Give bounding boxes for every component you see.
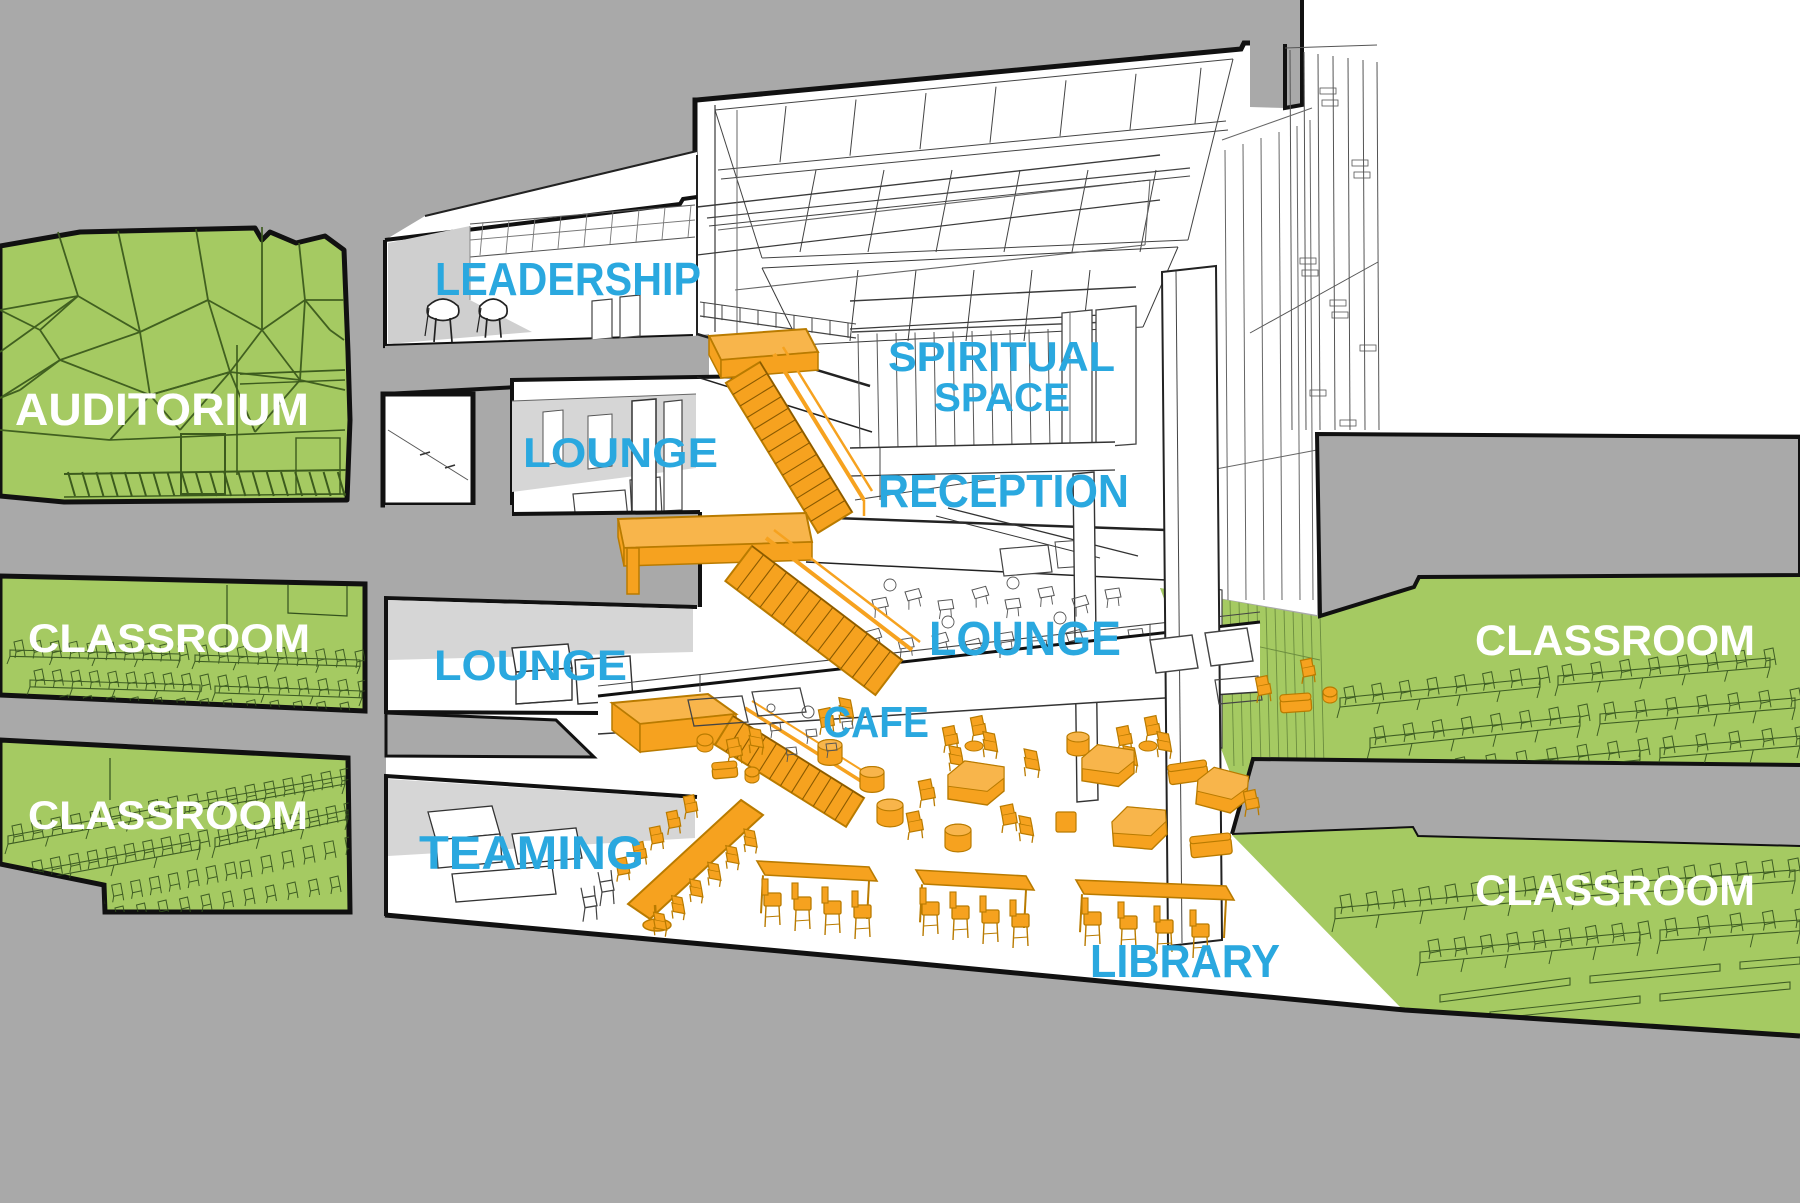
svg-text:RECEPTION: RECEPTION [878, 465, 1129, 517]
svg-text:SPIRITUAL: SPIRITUAL [888, 333, 1115, 380]
svg-text:LOUNGE: LOUNGE [434, 642, 627, 690]
svg-text:CAFE: CAFE [823, 698, 929, 747]
svg-text:AUDITORIUM: AUDITORIUM [15, 384, 309, 435]
svg-text:CLASSROOM: CLASSROOM [28, 617, 310, 661]
svg-text:LOUNGE: LOUNGE [929, 613, 1121, 666]
svg-text:TEAMING: TEAMING [419, 826, 644, 879]
svg-text:CLASSROOM: CLASSROOM [1475, 867, 1755, 915]
svg-text:LEADERSHIP: LEADERSHIP [435, 253, 701, 305]
svg-text:CLASSROOM: CLASSROOM [1475, 617, 1755, 665]
svg-text:LOUNGE: LOUNGE [523, 429, 718, 476]
svg-text:SPACE: SPACE [934, 376, 1070, 420]
svg-text:CLASSROOM: CLASSROOM [28, 794, 308, 838]
svg-text:LIBRARY: LIBRARY [1090, 935, 1280, 987]
